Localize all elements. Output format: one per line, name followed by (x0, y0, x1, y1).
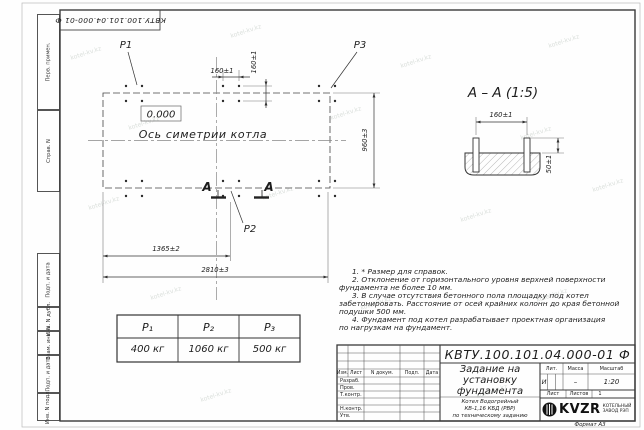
section-view: А – А (1:5) 160±1 50±1 (465, 85, 564, 175)
sheets-label: Листов (566, 390, 592, 398)
dim-bolt-horizontal: 160±1 (211, 67, 234, 75)
anchor-bolt-right (524, 138, 530, 172)
change-col-izm: Изм. (337, 369, 348, 377)
corner-stamp-number: КВТУ.100.101.04.000-01 Ф (55, 16, 166, 25)
section-title: А – А (1:5) (467, 85, 538, 101)
format-label: Формат А3 (560, 421, 620, 429)
kvzr-emblem-icon (542, 402, 557, 417)
title-line: установку (440, 375, 540, 386)
plan-dimensions: 160±1 160±1 960±3 1365±2 2810±3 (103, 51, 380, 284)
product-line: по техническому заданию (440, 413, 540, 420)
change-col-sign: Подп. (400, 369, 424, 377)
notes-block: 1. * Размер для справок. 2. Отклонение о… (339, 268, 635, 332)
sign-row-utv: Утв. (340, 413, 351, 419)
dim-section-spacing: 160±1 (490, 111, 513, 119)
dim-plan-length: 2810±3 (201, 266, 228, 274)
change-col-doc: N докум. (364, 369, 400, 377)
mass-value: – (563, 374, 588, 390)
load-point-p3-label: P3 (354, 40, 366, 51)
title-block-doc-number: КВТУ.100.101.04.000-01 Ф (442, 346, 633, 362)
load-table-header-p2: P₂ (178, 317, 239, 337)
load-table-value-p3: 500 кг (239, 339, 300, 360)
drawing-sheet: kotel-kv.kz kotel-kv.kz kotel-kv.kz kote… (0, 0, 644, 430)
section-letter-right: А (263, 180, 273, 194)
sheet-label: Лист (540, 390, 566, 398)
dim-plan-center: 1365±2 (152, 245, 179, 253)
load-point-p2-label: P2 (244, 224, 256, 235)
title-block-product: Котел Водогрейный КВ-1,16 КБД (РВР) по т… (440, 399, 540, 419)
product-line: КВ-1,16 КБД (РВР) (440, 406, 540, 413)
title-line: фундамента (440, 386, 540, 397)
lit-value: И (540, 374, 548, 390)
logo-subtitle-line2: ЗАВОД РЭП (603, 410, 632, 415)
load-table-value-p2: 1060 кг (178, 339, 239, 360)
load-table-header-p1: P₁ (117, 317, 178, 337)
anchor-bolt-points (125, 85, 336, 197)
section-letter-left: А (201, 180, 211, 194)
note-line: по нагрузкам на фундамент. (339, 324, 635, 332)
scale-value: 1:20 (588, 374, 635, 390)
product-line: Котел Водогрейный (440, 399, 540, 406)
scale-header: Масштаб (588, 365, 635, 373)
mass-header: Масса (563, 365, 588, 373)
sign-row-nkontr: Н.контр. (340, 406, 362, 412)
logo-name: KVZR (559, 402, 601, 417)
sheets-value: 1 (592, 390, 608, 398)
change-col-list: Лист (348, 369, 364, 377)
dim-plan-width: 960±3 (361, 129, 369, 152)
anchor-bolt-left (473, 138, 479, 172)
dim-section-height: 50±1 (545, 155, 553, 174)
plan-view: P1 P3 P2 0.000 Ось симетрии котла А А (88, 40, 366, 300)
title-block-document-title: Задание на установку фундамента (440, 364, 540, 397)
manufacturer-logo: KVZR КОТЕЛЬНЫЙ ЗАВОД РЭП (542, 399, 634, 420)
lit-header: Лит. (540, 365, 563, 373)
sign-row-tkontr: Т.контр. (340, 392, 362, 398)
load-table-value-p1: 400 кг (117, 339, 178, 360)
load-table-header-p3: P₃ (239, 317, 300, 337)
corner-stamp: КВТУ.100.101.04.000-01 Ф (60, 10, 160, 30)
sign-row-prov: Пров. (340, 385, 355, 391)
title-line: Задание на (440, 364, 540, 375)
symmetry-axis-label: Ось симетрии котла (139, 128, 268, 141)
dim-bolt-vertical: 160±1 (250, 51, 258, 74)
sign-row-razrab: Разраб. (340, 378, 360, 384)
load-point-p1-label: P1 (120, 40, 132, 51)
change-col-date: Дата (424, 369, 440, 377)
elevation-value: 0.000 (147, 110, 176, 121)
